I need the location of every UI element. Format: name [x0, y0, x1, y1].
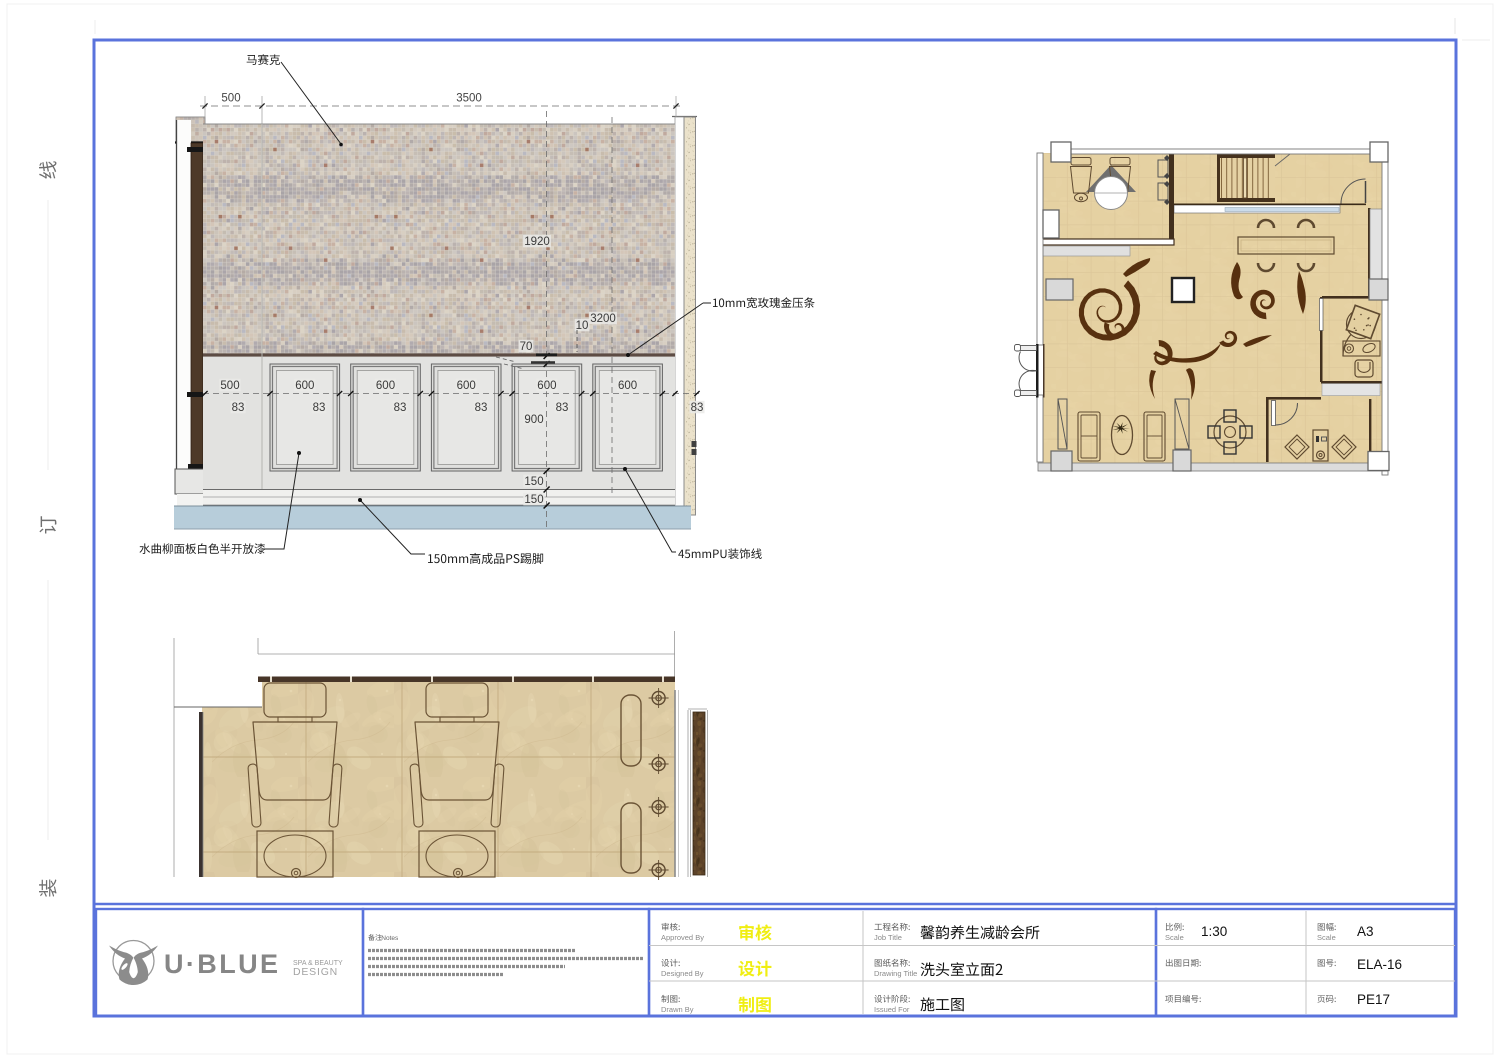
svg-text:Scale: Scale — [1317, 933, 1336, 942]
svg-text:600: 600 — [537, 380, 556, 392]
svg-text::Notes: :Notes — [380, 935, 400, 942]
svg-text:83: 83 — [691, 402, 704, 414]
svg-text:600: 600 — [295, 380, 314, 392]
svg-text:Job Title: Job Title — [874, 933, 902, 942]
svg-text:3200: 3200 — [590, 313, 616, 325]
svg-text:150: 150 — [524, 494, 543, 506]
svg-text:83: 83 — [394, 402, 407, 414]
svg-text:Designed By: Designed By — [661, 969, 704, 978]
svg-text:600: 600 — [457, 380, 476, 392]
svg-text:Issued For: Issued For — [874, 1005, 910, 1014]
svg-text:Drawn By: Drawn By — [661, 1005, 694, 1014]
svg-text:10: 10 — [576, 320, 589, 332]
svg-text:500: 500 — [220, 380, 239, 392]
svg-text:1:30: 1:30 — [1201, 924, 1227, 939]
svg-text:DESIGN: DESIGN — [293, 966, 338, 978]
svg-text:Scale: Scale — [1165, 933, 1184, 942]
svg-text:1920: 1920 — [524, 236, 550, 248]
svg-text:3500: 3500 — [456, 93, 482, 105]
svg-text:U·BLUE: U·BLUE — [164, 949, 280, 979]
svg-text:83: 83 — [313, 402, 326, 414]
svg-text:900: 900 — [524, 414, 543, 426]
svg-text:Drawing Title: Drawing Title — [874, 969, 917, 978]
svg-text:600: 600 — [618, 380, 637, 392]
svg-text:600: 600 — [376, 380, 395, 392]
svg-text:83: 83 — [475, 402, 488, 414]
svg-text:PE17: PE17 — [1357, 992, 1390, 1007]
svg-text:A3: A3 — [1357, 924, 1374, 939]
svg-text:500: 500 — [221, 93, 240, 105]
svg-text:Approved By: Approved By — [661, 933, 704, 942]
svg-text:150: 150 — [524, 476, 543, 488]
svg-text:83: 83 — [232, 402, 245, 414]
svg-text:83: 83 — [556, 402, 569, 414]
svg-text:70: 70 — [520, 341, 533, 353]
svg-text:ELA-16: ELA-16 — [1357, 957, 1402, 972]
